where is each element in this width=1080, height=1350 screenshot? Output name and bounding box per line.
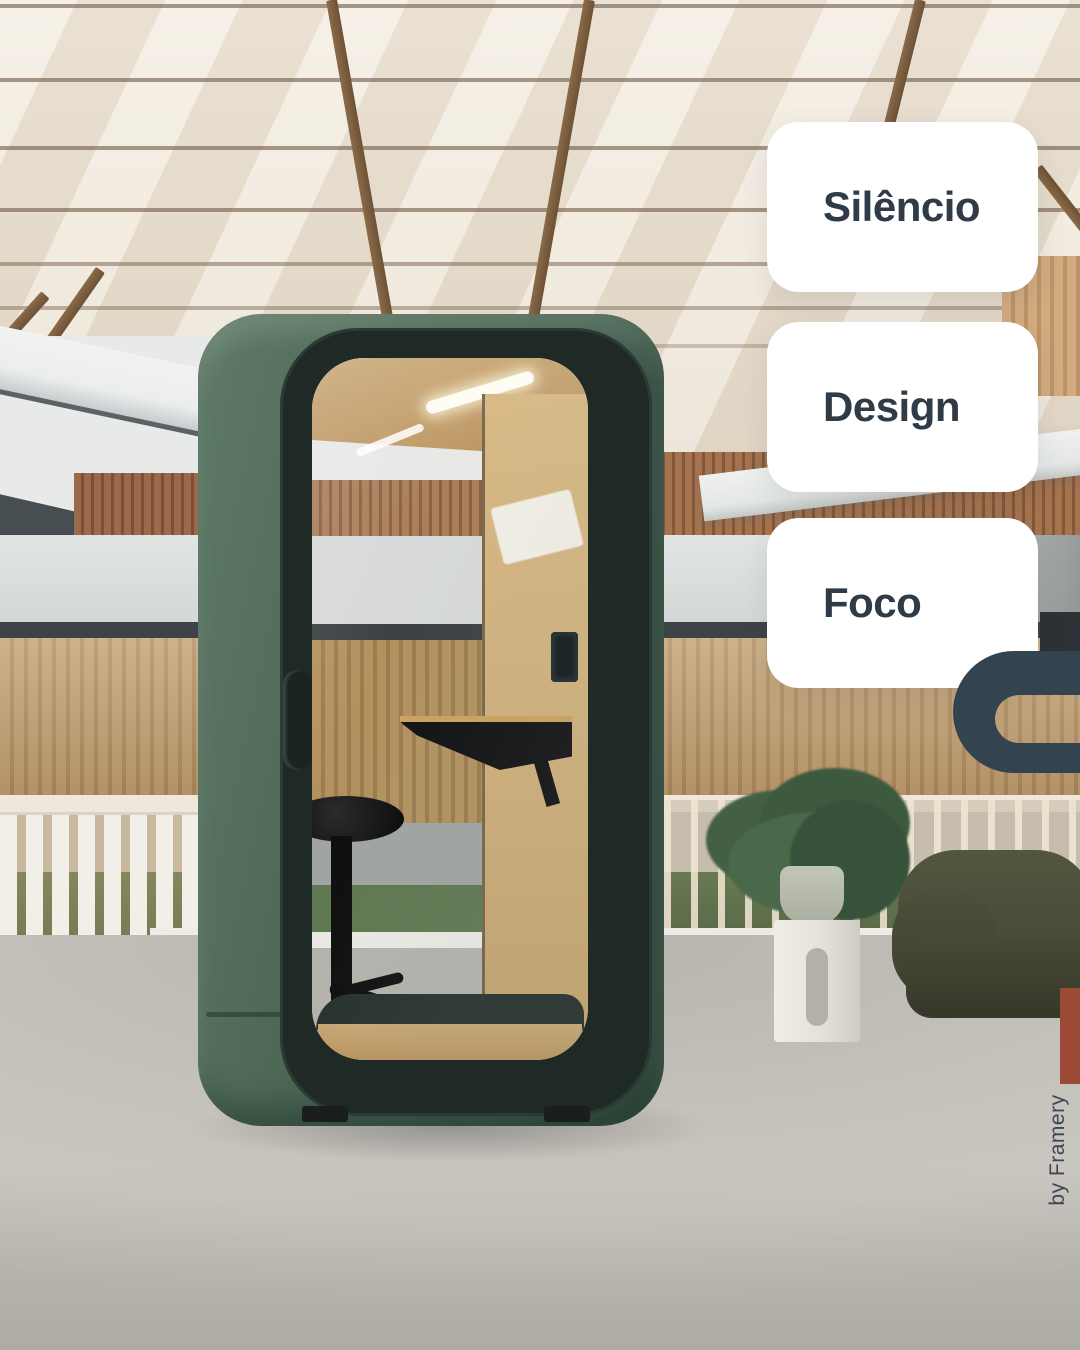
card-design: Design	[767, 322, 1038, 492]
booth-glass-door	[312, 358, 588, 1060]
railing-balusters-left	[0, 815, 214, 937]
side-table-slot	[806, 948, 828, 1026]
card-foco-label: Foco	[823, 579, 921, 627]
booth-foot	[544, 1106, 590, 1122]
card-design-label: Design	[823, 383, 960, 431]
rust-side-table	[1060, 988, 1080, 1084]
door-handle	[283, 670, 312, 770]
armchair-leg	[900, 1040, 1020, 1050]
social-post: Silêncio Design Foco by Framery	[0, 0, 1080, 1350]
card-silencio-label: Silêncio	[823, 183, 980, 231]
plant-pot	[780, 866, 844, 924]
credit-text: by Framery	[1046, 1094, 1070, 1205]
c-shape-logo-icon	[950, 646, 1080, 778]
glass-sheen	[312, 358, 588, 1060]
armchair-seat	[906, 938, 1080, 1018]
booth-panel-seam	[206, 1012, 286, 1017]
ceiling-beam-line	[0, 78, 1080, 82]
booth-foot	[302, 1106, 348, 1122]
card-silencio: Silêncio	[767, 122, 1038, 292]
